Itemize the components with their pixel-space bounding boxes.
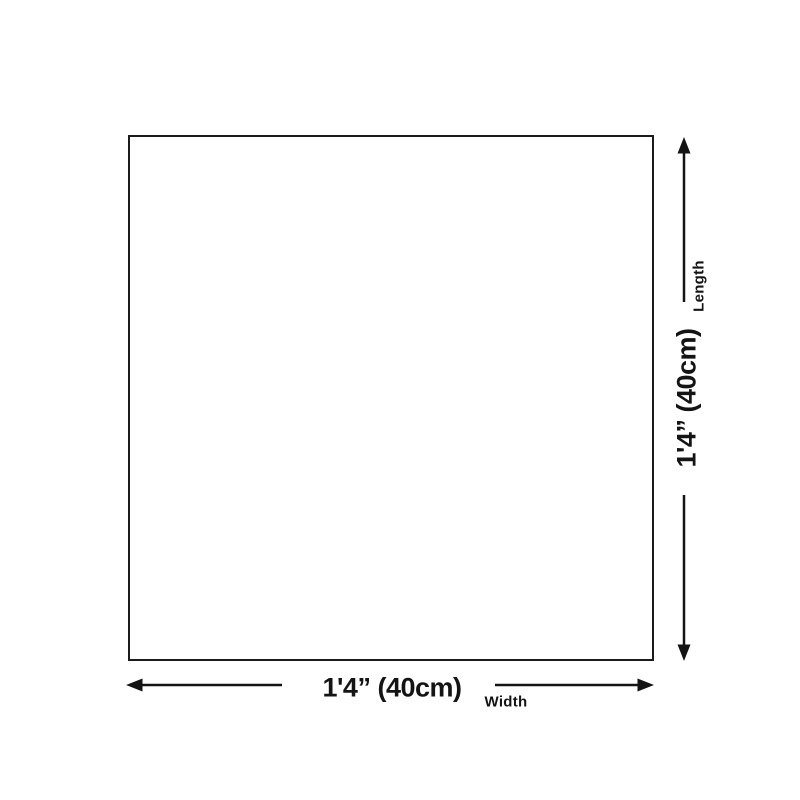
product-outline-box bbox=[128, 135, 654, 661]
width-axis-label: Width bbox=[484, 694, 527, 711]
length-value-label: 1'4” (40cm) bbox=[672, 329, 703, 468]
product-dimension-diagram: 1'4” (40cm) Width 1'4” (40cm) Length bbox=[0, 0, 800, 800]
width-value-label: 1'4” (40cm) bbox=[323, 673, 462, 704]
arrow-up-icon bbox=[678, 137, 691, 154]
arrow-down-icon bbox=[678, 645, 691, 662]
length-axis-label: Length bbox=[691, 260, 708, 312]
arrow-left-icon bbox=[126, 679, 143, 692]
arrow-right-icon bbox=[638, 679, 655, 692]
